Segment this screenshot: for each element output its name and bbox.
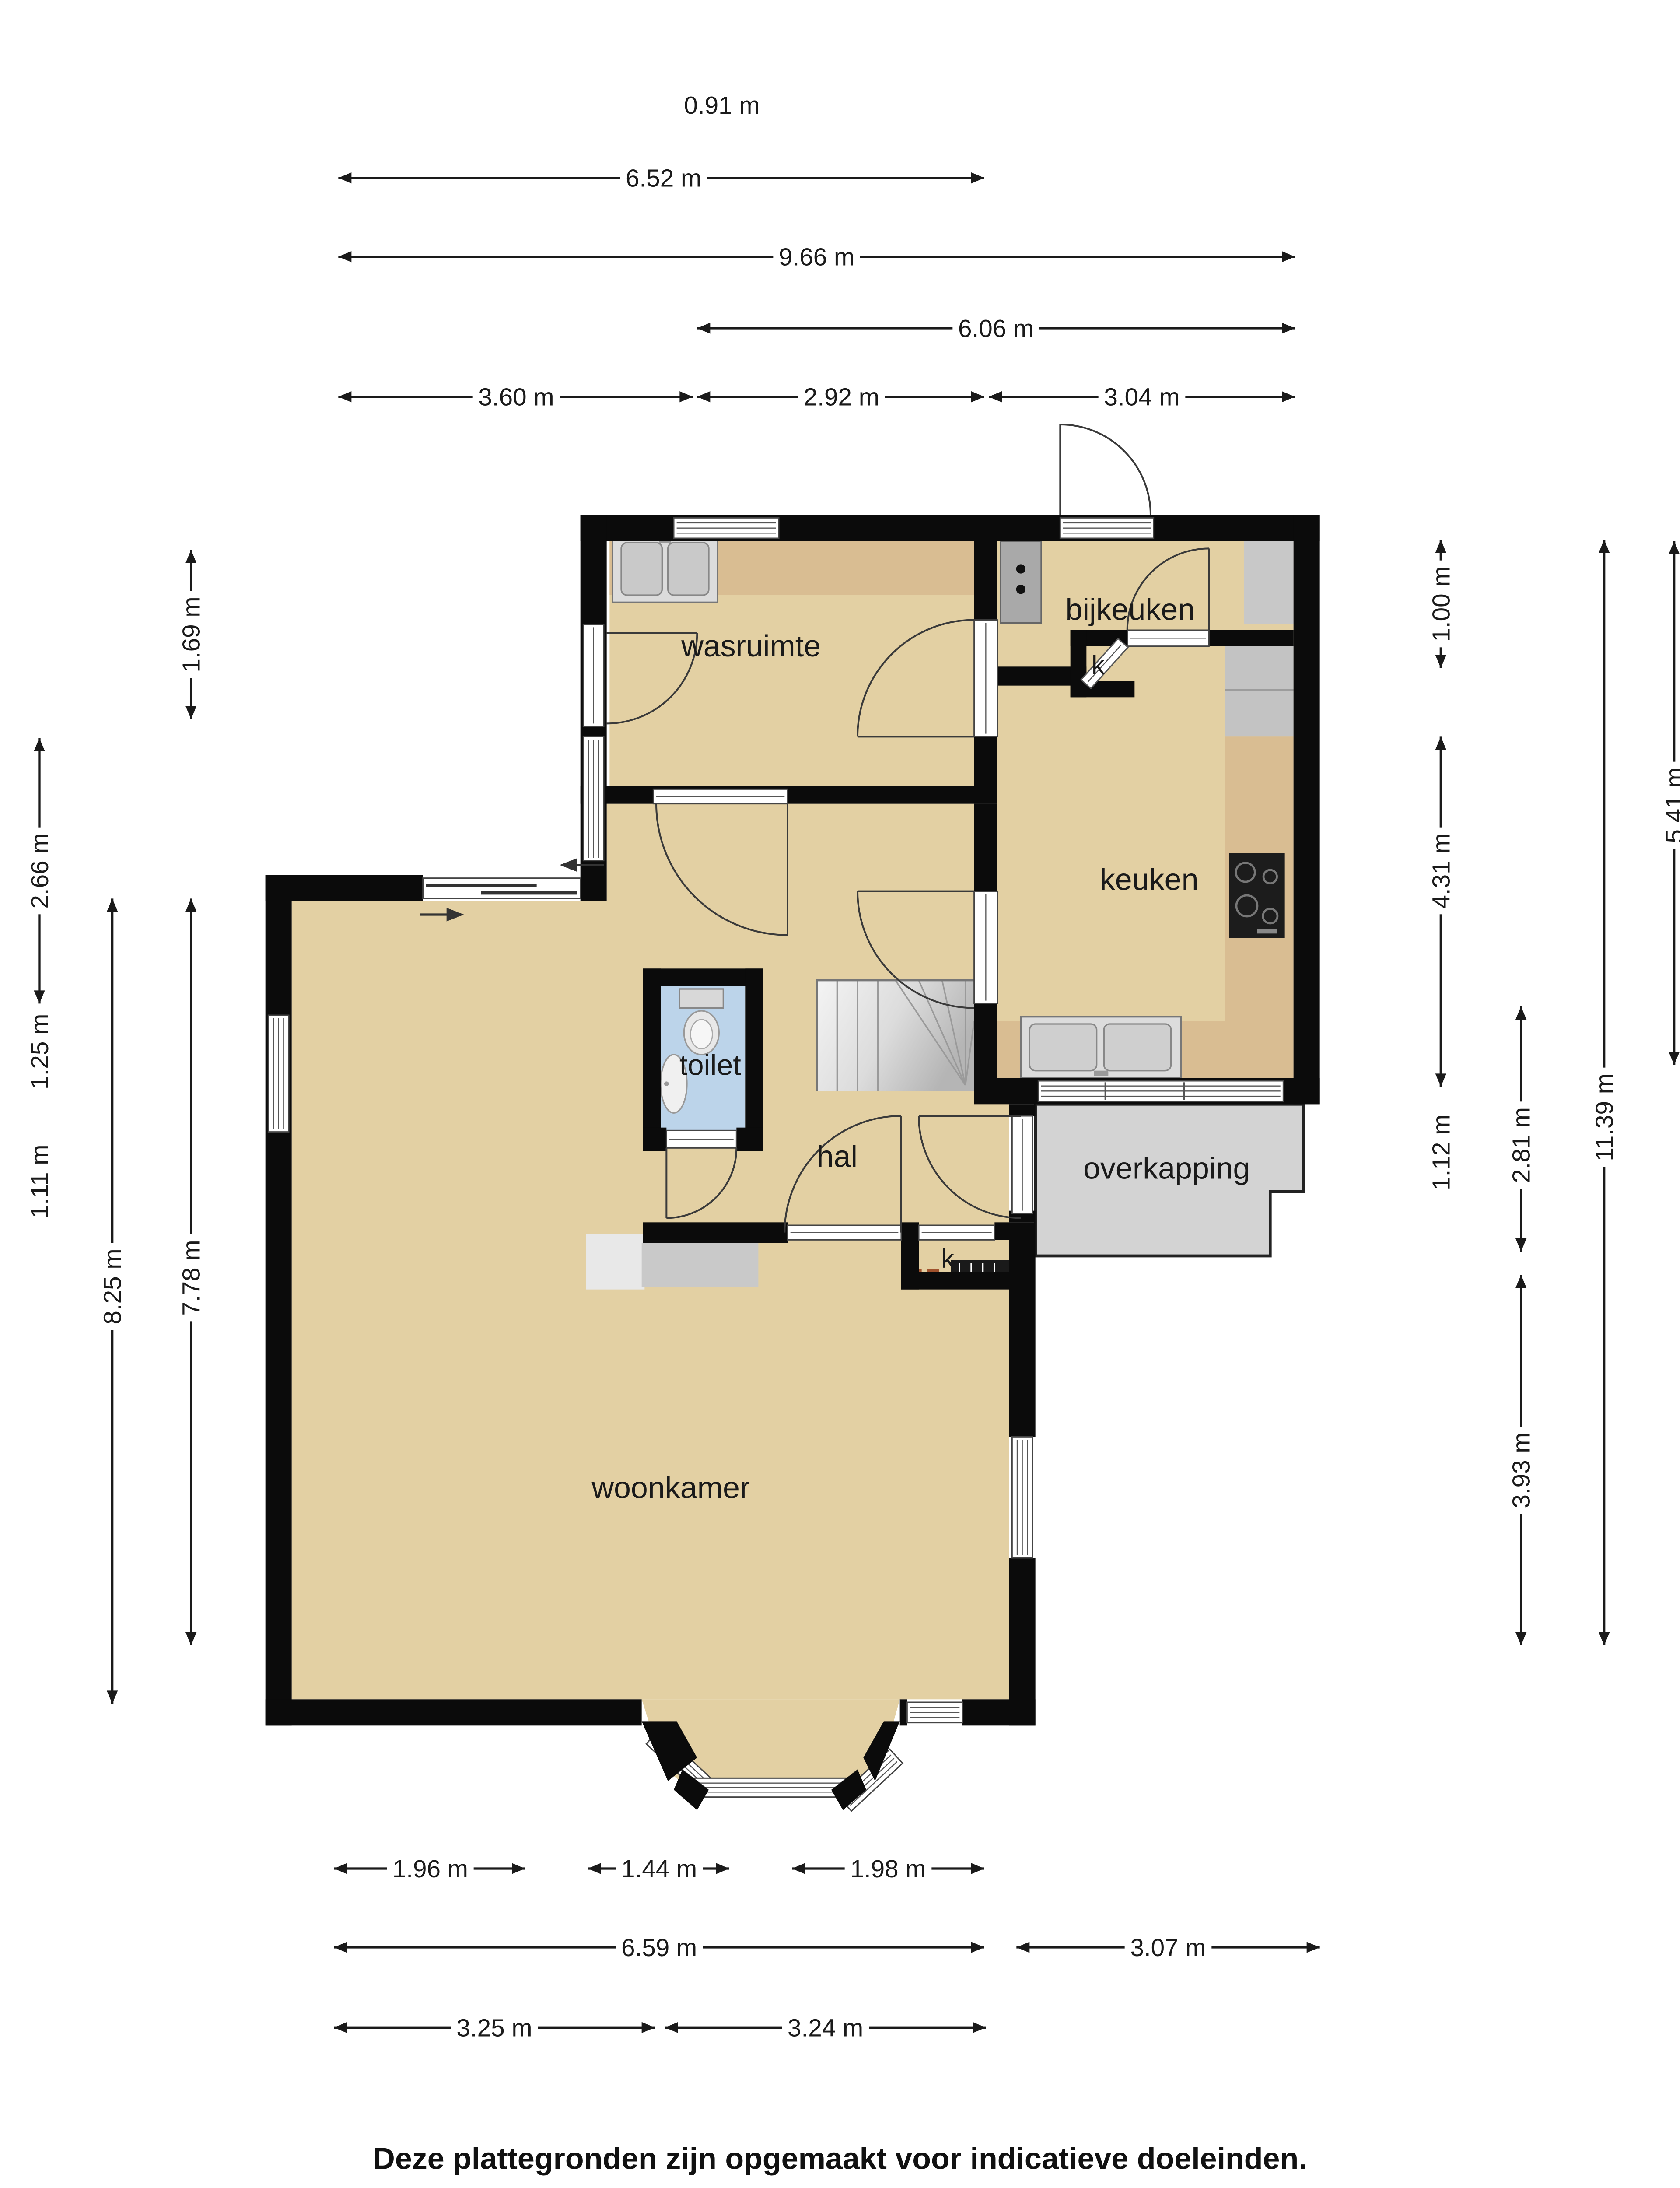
dimension-1.25m: 1.25 m [25,1008,54,1095]
dimension-arrowhead [1435,655,1446,668]
dimension-2.92m: 2.92 m [697,383,984,411]
dimension-label: 3.60 m [478,384,554,411]
window [1060,518,1153,538]
room-label-hal: hal [817,1140,857,1174]
dimension-1.69m: 1.69 m [177,550,206,719]
door-opening [666,1130,736,1148]
wall-segment [1009,1558,1036,1725]
dimension-label: 2.66 m [26,833,54,908]
dimension-arrowhead [1282,391,1295,402]
disclaimer-line-1: Deze plattegronden zijn opgemaakt voor i… [0,2143,1680,2178]
dimension-arrowhead [1016,1942,1029,1953]
dimension-1.96m: 1.96 m [334,1855,525,1883]
dimension-label: 1.96 m [392,1855,468,1883]
dimension-arrowhead [334,1863,347,1874]
dimension-1.44m: 1.44 m [588,1855,729,1883]
dimension-arrowhead [971,1942,984,1953]
room-label-toilet: toilet [679,1049,741,1082]
wall-segment [1009,1222,1036,1437]
room-label-bijkeuken: bijkeuken [1065,593,1195,627]
window [1038,1081,1283,1101]
dimension-arrowhead [679,391,693,402]
dimension-label: 2.81 m [1508,1107,1536,1183]
dimension-arrowhead [512,1863,525,1874]
dimension-arrowhead [792,1863,805,1874]
room-label-woonkamer: woonkamer [591,1470,750,1504]
dimension-6.59m: 6.59 m [334,1933,984,1962]
wall-segment [736,1128,763,1151]
dimension-3.24m: 3.24 m [665,2014,986,2042]
wall-segment [266,1699,642,1725]
bijkeuken-cabinet [1244,541,1293,624]
room-label-keuken: keuken [1100,862,1199,896]
dimension-arrowhead [338,391,351,402]
window [583,736,604,860]
room-label-wasruimte: wasruimte [681,629,821,663]
door-opening [1127,630,1209,646]
room-label-closet-lower: k [941,1244,955,1273]
door-opening [583,624,604,726]
wasruimte-sink-basin-right [668,543,709,595]
window [907,1702,962,1723]
dimension-arrowhead [971,1863,984,1874]
dimension-arrowhead [1515,1275,1526,1288]
dimension-arrowhead [973,2022,986,2033]
dimension-arrowhead [1435,540,1446,553]
dimension-label: 1.12 m [1428,1115,1455,1190]
dimension-arrowhead [107,898,118,912]
room-label-overkapping: overkapping [1083,1151,1250,1185]
wall-segment [745,968,763,1151]
dimension-label: 3.24 m [787,2014,863,2042]
dimension-label: 8.25 m [99,1248,127,1324]
dimension-label: 3.25 m [456,2014,532,2042]
dimension-label: 11.39 m [1591,1073,1619,1161]
door-opening [787,1225,901,1240]
wall-segment [974,804,997,891]
dimension-arrowhead [989,391,1002,402]
wall-segment [994,1222,1009,1240]
dimension-arrowhead [1435,736,1446,750]
dimension-arrowhead [1282,251,1295,262]
dimension-label: 1.00 m [1428,566,1455,642]
wall-segment [1009,1104,1036,1116]
dimension-arrowhead [338,172,351,183]
dimension-arrowhead [334,2022,347,2033]
wall-segment [643,968,661,1151]
dimension-1.00m: 1.00 m [1427,540,1456,668]
entry-mat [642,1243,759,1287]
window [268,1015,289,1132]
door-opening [919,1225,994,1240]
dimension-6.06m: 6.06 m [697,314,1295,343]
dimension-arrowhead [1515,1006,1526,1020]
dimension-arrowhead [1282,323,1295,333]
dimension-arrowhead [642,2022,655,2033]
dimension-arrowhead [185,1632,196,1645]
dimension-11.39m: 11.39 m [1590,540,1619,1645]
dimension-label: 9.66 m [779,244,854,271]
dimension-label: 3.07 m [1130,1934,1206,1962]
dimension-label: 1.98 m [850,1855,926,1883]
dimension-arrowhead [971,391,984,402]
dimension-label: 1.69 m [178,596,206,672]
keuken-sink-unit [1021,1017,1181,1078]
wall-segment [901,1272,1009,1290]
dimension-3.07m: 3.07 m [1016,1933,1319,1962]
window [674,518,779,538]
room-label-closet-upper: k [1092,650,1105,680]
dimension-arrowhead [185,706,196,719]
dimension-arrowhead [1515,1632,1526,1645]
dimension-label: 0.91 m [684,92,759,119]
wasruimte-sink-basin-left [621,543,662,595]
dimension-arrowhead [971,172,984,183]
dimension-5.41m: 5.41 m [1660,541,1680,1065]
dimension-arrowhead [338,251,351,262]
door-swing-arc [1060,424,1151,515]
wall-segment [974,1003,997,1078]
toilet-fixture [679,989,723,1055]
door-opening [653,789,787,803]
dimension-arrowhead [1515,1238,1526,1252]
dimension-label: 3.04 m [1104,384,1179,411]
dimension-7.78m: 7.78 m [177,898,206,1645]
floorplan-canvas: 0.91 m6.52 m9.66 m6.06 m3.60 m2.92 m3.04… [0,0,1680,2188]
dimension-arrowhead [34,990,45,1003]
wall-segment [643,1222,787,1243]
dimension-arrowhead [1669,541,1680,554]
keuken-tall-cabinet [1225,646,1294,737]
dimension-label: 3.93 m [1508,1432,1536,1508]
dimension-3.04m: 3.04 m [989,383,1295,411]
dimension-arrowhead [716,1863,729,1874]
dimension-2.66m: 2.66 m [25,738,54,1004]
wall-segment [643,1128,666,1151]
dimension-label: 2.92 m [804,384,879,411]
dimension-4.31m: 4.31 m [1427,736,1456,1087]
boiler-appliance [1001,541,1041,623]
dimension-3.25m: 3.25 m [334,2014,654,2042]
dimension-arrowhead [1307,1942,1320,1953]
wall-segment [581,786,997,804]
dimension-arrowhead [588,1863,601,1874]
entry-mat-light [586,1234,644,1290]
dimension-label: 6.59 m [621,1934,697,1962]
door-opening [974,891,997,1004]
dimension-3.93m: 3.93 m [1507,1275,1536,1645]
wall-segment [266,875,423,901]
wall-segment [1294,515,1320,1105]
staircase [817,980,974,1091]
dimension-2.81m: 2.81 m [1507,1006,1536,1252]
wall-segment [266,875,292,1725]
dimension-label: 1.25 m [26,1014,54,1090]
wall-segment [1209,630,1293,646]
dimension-9.66m: 9.66 m [338,243,1295,271]
wall-segment [1071,681,1135,698]
window [1012,1437,1032,1558]
dimension-arrowhead [1669,1052,1680,1065]
dimension-arrowhead [334,1942,347,1953]
dimension-label: 4.31 m [1428,833,1455,908]
dimension-arrowhead [185,550,196,563]
wall-segment [900,1699,907,1725]
door-opening [1012,1116,1032,1213]
dimension-1.11m: 1.11 m [25,1138,54,1225]
dimension-arrowhead [697,391,710,402]
dimension-arrowhead [1435,1073,1446,1087]
dimension-arrowhead [665,2022,678,2033]
dimension-label: 6.52 m [626,165,701,193]
dimension-label: 7.78 m [178,1240,206,1315]
cooktop-icon [1229,853,1285,938]
door-opening [974,620,997,737]
staircase-body [817,980,974,1091]
floorplan-page: 0.91 m6.52 m9.66 m6.06 m3.60 m2.92 m3.04… [0,0,1680,2188]
dimension-label: 1.44 m [621,1855,697,1883]
door-opening [423,878,581,899]
dimension-0.91m: 0.91 m [684,92,759,119]
dimension-1.12m: 1.12 m [1427,1109,1456,1196]
dimension-arrowhead [34,738,45,751]
dimension-label: 1.11 m [26,1144,54,1218]
dimension-arrowhead [1599,1632,1610,1645]
dimension-arrowhead [107,1690,118,1704]
dimension-1.98m: 1.98 m [792,1855,984,1883]
dimension-arrowhead [185,898,196,912]
dimension-3.60m: 3.60 m [338,383,693,411]
wall-segment [643,968,763,986]
dimension-arrowhead [697,323,710,333]
dimension-arrowhead [1599,540,1610,553]
dimension-label: 6.06 m [958,315,1034,343]
dimension-label: 5.41 m [1661,767,1680,843]
dimension-8.25m: 8.25 m [98,898,127,1704]
dimension-6.52m: 6.52 m [338,164,984,193]
